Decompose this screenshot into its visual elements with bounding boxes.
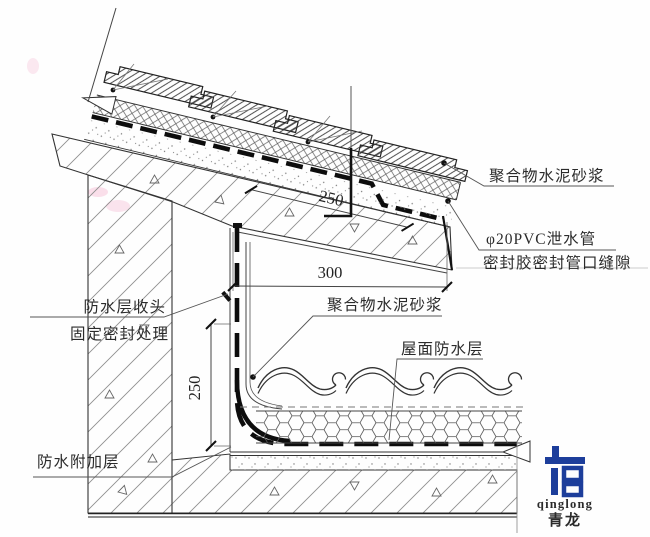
eave-gutter-waterproofing-detail: 250 xyxy=(0,0,650,537)
svg-text:密封胶密封管口缝隙: 密封胶密封管口缝隙 xyxy=(483,254,632,272)
dimension-wall-250: 250 xyxy=(185,319,231,451)
dim-eave-300: 300 xyxy=(318,263,343,282)
qinglong-logo-glyph xyxy=(545,446,585,495)
svg-text:固定密封处理: 固定密封处理 xyxy=(70,325,169,343)
qinglong-logo: qinglong 青龙 xyxy=(537,446,593,529)
svg-text:屋面防水层: 屋面防水层 xyxy=(401,340,484,358)
svg-text:φ20PVC泄水管: φ20PVC泄水管 xyxy=(486,230,596,248)
label-drain-pipe: φ20PVC泄水管 密封胶密封管口缝隙 xyxy=(445,198,631,272)
label-mortar-mid: 聚合物水泥砂浆 xyxy=(250,296,442,380)
dim-wall-250: 250 xyxy=(185,376,204,401)
wave-tile-layer xyxy=(258,368,522,395)
construction-detail-drawing: 250 xyxy=(0,0,650,537)
svg-text:聚合物水泥砂浆: 聚合物水泥砂浆 xyxy=(327,296,443,314)
qinglong-logo-cjk: 青龙 xyxy=(548,511,582,529)
roof-left-edge xyxy=(88,8,116,102)
svg-text:防水层收头: 防水层收头 xyxy=(83,298,166,316)
slab-screed xyxy=(230,456,517,470)
qinglong-logo-latin: qinglong xyxy=(537,497,593,511)
svg-text:防水附加层: 防水附加层 xyxy=(37,453,120,471)
svg-text:聚合物水泥砂浆: 聚合物水泥砂浆 xyxy=(489,167,605,185)
termination-clamp xyxy=(233,223,242,228)
